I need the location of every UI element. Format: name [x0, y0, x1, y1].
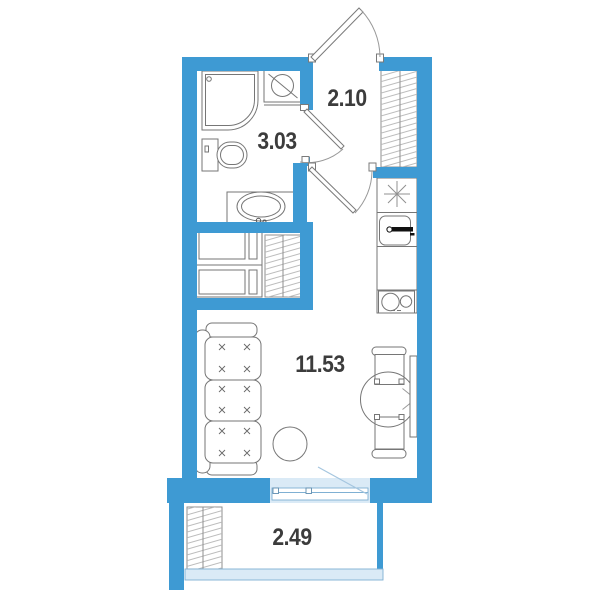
- entrance-door-swing-arc: [361, 10, 380, 57]
- wall-kitchen-top: [373, 167, 417, 178]
- room-label-hallway: 2.10: [327, 85, 366, 113]
- bathroom-door: [300, 105, 344, 163]
- wall-closet-right: [300, 222, 313, 310]
- radiator-icon: [410, 356, 417, 437]
- vent-shaft-closet-icon: [265, 235, 301, 297]
- wall-balcony-right: [377, 503, 383, 570]
- wardrobe-icon: [194, 227, 262, 297]
- chair-bottom-icon: [372, 415, 406, 459]
- stool-icon: [273, 427, 307, 461]
- living-room-door-leaf: [309, 167, 356, 213]
- kitchen-sink-icon: [380, 216, 415, 245]
- living-room-door: [309, 163, 377, 213]
- balcony-door-handle: [273, 488, 279, 494]
- living-room-door-swing-arc: [355, 171, 372, 213]
- door-jamb: [302, 157, 309, 163]
- balcony-window-band: [185, 569, 383, 580]
- floor-plan-drawing: [0, 0, 600, 600]
- vent-shaft-hall-icon: [381, 70, 417, 167]
- bathroom-sink-icon: [227, 192, 296, 223]
- wall-bathroom-right-lower: [293, 163, 307, 223]
- room-label-balcony: 2.49: [272, 524, 311, 552]
- vent-shaft-balcony-icon: [187, 507, 222, 569]
- room-label-bathroom: 3.03: [257, 128, 296, 156]
- floor-plan: 2.10 3.03 11.53 2.49: [0, 0, 600, 600]
- entrance-door: [309, 8, 384, 62]
- balcony-door-handle: [306, 488, 312, 494]
- chair-top-icon: [372, 347, 406, 385]
- entrance-door-leaf: [311, 8, 363, 61]
- door-jamb: [369, 163, 376, 171]
- wall-top-left: [182, 57, 313, 71]
- stove-icon: [379, 291, 415, 313]
- toilet-icon: [202, 139, 247, 171]
- wall-bathroom-bottom: [197, 222, 307, 233]
- shower-icon: [202, 71, 258, 130]
- balcony-door-frame: [272, 488, 368, 500]
- bathroom-door-leaf: [304, 109, 344, 149]
- sofa-icon: [195, 323, 261, 475]
- wall-balcony-left: [169, 478, 184, 590]
- wall-closet-bottom: [182, 298, 313, 310]
- washing-machine-icon: [264, 70, 301, 105]
- room-label-living-room: 11.53: [295, 351, 344, 379]
- wall-right: [417, 57, 432, 503]
- wall-left: [182, 57, 197, 480]
- wall-bottom-right: [370, 478, 432, 503]
